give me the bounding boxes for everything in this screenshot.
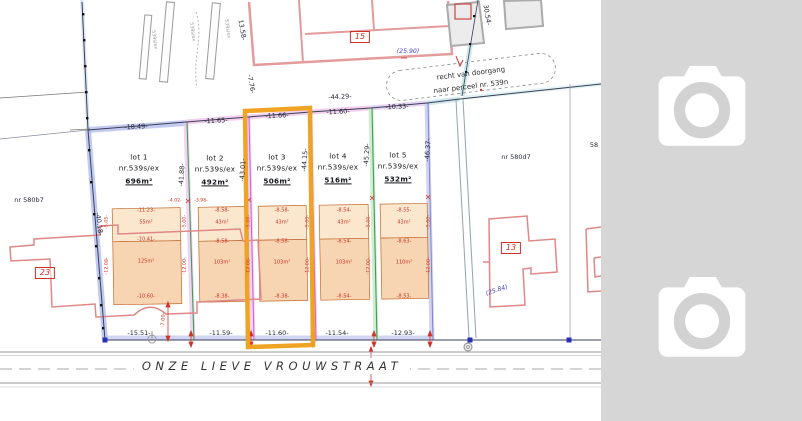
edge-building-fragment	[586, 227, 601, 292]
building-13-outline	[483, 216, 557, 307]
cadastral-plan: -18.49--11.65--11.66--11.60--10.33--44.2…	[0, 0, 601, 421]
screenshot-stage: -18.49--11.65--11.66--11.60--10.33--44.2…	[0, 0, 802, 421]
street-name-label: ONZE LIEVE VROUWSTRAAT	[134, 358, 410, 374]
building-15-outline	[249, 0, 452, 65]
gray-outbuildings	[447, 0, 543, 46]
camera-icon	[650, 268, 754, 364]
building-footprints	[112, 203, 429, 304]
photo-panel	[601, 0, 802, 421]
photo-placeholder-2[interactable]	[601, 211, 802, 421]
garden-strips	[139, 2, 220, 88]
photo-placeholder-1[interactable]	[601, 0, 802, 211]
right-of-way-outline	[385, 52, 557, 102]
camera-icon	[650, 57, 754, 153]
